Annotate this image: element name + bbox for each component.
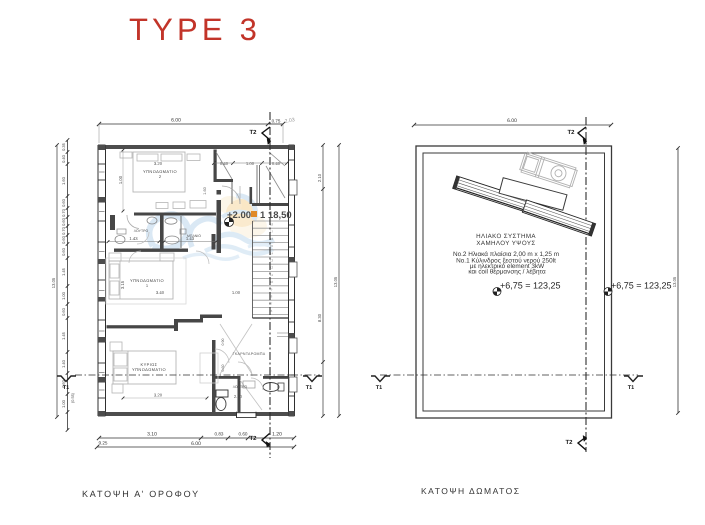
svg-text:+6,75 = 123,25: +6,75 = 123,25 [500, 281, 561, 291]
svg-text:3.15: 3.15 [120, 280, 125, 289]
svg-text:1.43: 1.43 [186, 236, 195, 241]
svg-text:ΥΠΝΟΔΩΜΑΤΙΟ: ΥΠΝΟΔΩΜΑΤΙΟ [132, 367, 166, 372]
svg-text:1.60: 1.60 [203, 187, 207, 194]
svg-text:ΧΑΜΗΛΟΥ ΥΨΟΥΣ: ΧΑΜΗΛΟΥ ΥΨΟΥΣ [476, 240, 535, 247]
svg-text:(0.55): (0.55) [71, 392, 75, 403]
svg-text:3.20: 3.20 [154, 161, 163, 166]
svg-text:0.60: 0.60 [61, 307, 66, 316]
svg-text:0.35: 0.35 [61, 142, 66, 151]
svg-text:T1: T1 [306, 385, 312, 391]
svg-text:1.43: 1.43 [129, 236, 138, 241]
svg-text:1.00: 1.00 [232, 290, 241, 295]
svg-text:0.60: 0.60 [61, 217, 66, 226]
svg-text:1.00: 1.00 [61, 291, 66, 300]
svg-text:0.60: 0.60 [61, 198, 66, 207]
svg-text:2.20: 2.20 [234, 394, 243, 399]
svg-text:13.05: 13.05 [51, 277, 56, 288]
svg-text:1.60: 1.60 [61, 176, 66, 185]
svg-text:2.10: 2.10 [317, 173, 322, 182]
svg-text:3.10: 3.10 [147, 432, 157, 438]
svg-text:8.30: 8.30 [317, 313, 322, 322]
svg-text:T2: T2 [567, 129, 575, 136]
svg-text:1.45: 1.45 [61, 331, 66, 340]
svg-text:3.20: 3.20 [154, 393, 163, 398]
svg-text:0.40: 0.40 [220, 161, 229, 166]
svg-text:T2: T2 [565, 439, 573, 446]
svg-text:T2: T2 [249, 129, 257, 136]
svg-text:13.05: 13.05 [672, 276, 677, 287]
svg-text:1.40: 1.40 [61, 359, 66, 368]
svg-text:T1: T1 [628, 385, 634, 391]
svg-text:0.75: 0.75 [272, 119, 281, 124]
svg-text:1 18,50: 1 18,50 [260, 210, 292, 221]
svg-text:και coil θέρμανσης / λέβητα: και coil θέρμανσης / λέβητα [468, 269, 546, 276]
svg-text:0.60: 0.60 [221, 365, 225, 372]
svg-text:ΛΟΥΤΡΟ: ΛΟΥΤΡΟ [134, 229, 149, 233]
svg-text:ΚΑΤΟΨΗ ΔΩΜΑΤΟΣ: ΚΑΤΟΨΗ ΔΩΜΑΤΟΣ [421, 486, 521, 496]
svg-text:0.90: 0.90 [221, 339, 225, 346]
svg-text:1.00: 1.00 [246, 161, 255, 166]
svg-text:3.40: 3.40 [156, 290, 165, 295]
svg-text:1.20: 1.20 [272, 432, 282, 438]
svg-text:ΓΚΑΡΝΤΑΡΟΜΠΑ: ΓΚΑΡΝΤΑΡΟΜΠΑ [233, 352, 266, 356]
svg-text:T1: T1 [376, 385, 382, 391]
svg-text:0.70: 0.70 [61, 208, 66, 217]
svg-text:0.60: 0.60 [61, 247, 66, 256]
svg-text:ΗΛΙΑΚΟ ΣΥΣΤΗΜΑ: ΗΛΙΑΚΟ ΣΥΣΤΗΜΑ [476, 233, 536, 240]
svg-text:6.00: 6.00 [507, 118, 517, 124]
svg-text:ΚΑΤΟΨΗ Α’ ΟΡΟΦΟΥ: ΚΑΤΟΨΗ Α’ ΟΡΟΦΟΥ [82, 489, 200, 499]
svg-text:+6,75 = 123,25: +6,75 = 123,25 [611, 281, 672, 291]
svg-text:0.40: 0.40 [272, 161, 281, 166]
svg-text:9.25: 9.25 [99, 441, 108, 446]
svg-text:TYPE 3: TYPE 3 [129, 12, 261, 47]
svg-text:6.00: 6.00 [171, 118, 181, 124]
svg-text:6.00: 6.00 [191, 441, 201, 447]
svg-text:ΛΟΥΤΡΟ: ΛΟΥΤΡΟ [233, 385, 248, 389]
svg-text:0.83: 0.83 [215, 432, 224, 437]
svg-text:1.00: 1.00 [118, 175, 123, 184]
svg-text:0.40: 0.40 [61, 154, 66, 163]
svg-text:1.45: 1.45 [61, 267, 66, 276]
svg-text:T2: T2 [249, 435, 257, 442]
svg-text:0.70: 0.70 [61, 226, 66, 235]
svg-text:T1: T1 [63, 385, 69, 391]
svg-text:1.00: 1.00 [61, 399, 66, 408]
svg-text:13.05: 13.05 [333, 276, 338, 287]
svg-text:0.60: 0.60 [61, 235, 66, 244]
svg-text:0.60: 0.60 [239, 432, 248, 437]
